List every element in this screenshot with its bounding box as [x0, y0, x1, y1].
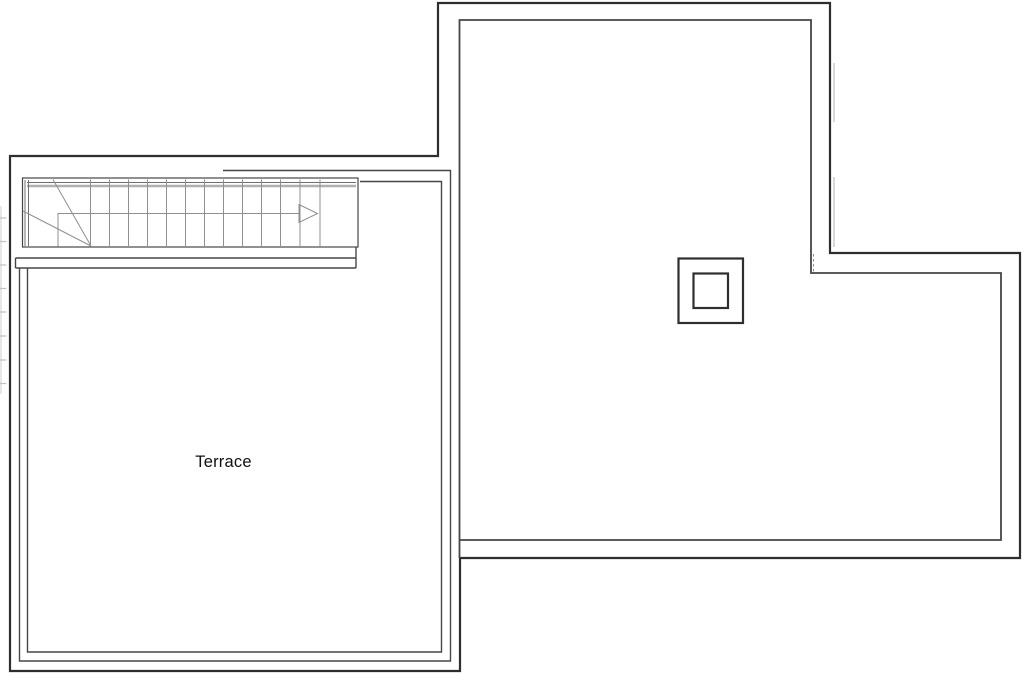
chimney-outer: [679, 259, 744, 324]
floor-plan-page: Terrace: [0, 0, 1024, 673]
terrace-parapet: [16, 171, 451, 662]
terrace-parapet-inner: [28, 182, 442, 653]
chimney: [679, 259, 744, 324]
inner-wall-outline: [460, 20, 1002, 558]
left-edge-stair-ticks: [0, 206, 7, 394]
stair-direction-arrow-icon: [299, 205, 318, 223]
stair-walkline: [58, 214, 299, 247]
stair-treads: [91, 180, 321, 247]
floor-plan-drawing: Terrace: [0, 0, 1024, 673]
terrace-parapet-middle: [20, 171, 451, 662]
building-outline: [10, 3, 1020, 671]
terrace-label: Terrace: [195, 453, 251, 471]
staircase: [23, 178, 359, 247]
chimney-inner: [694, 274, 729, 309]
stair-winder-lines: [23, 180, 91, 247]
outer-wall-outline: [10, 3, 1020, 671]
stair-side-parapet: [16, 247, 357, 268]
